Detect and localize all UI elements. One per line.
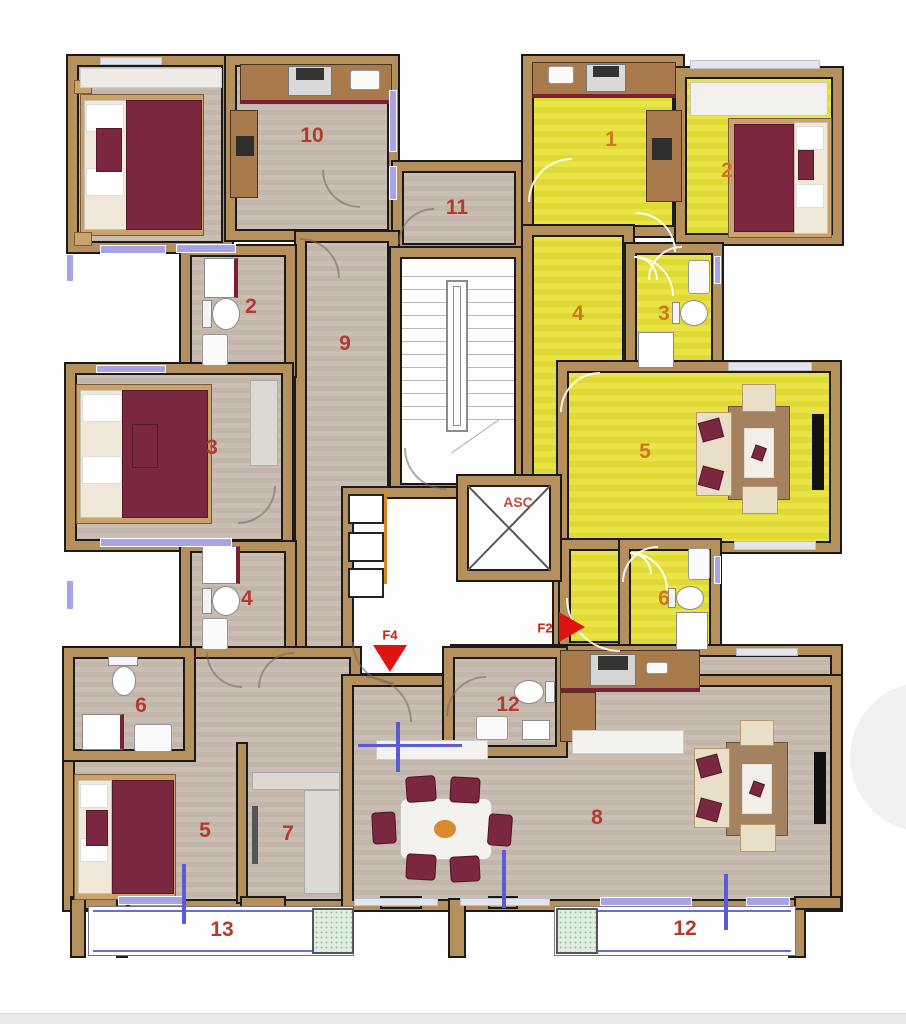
bed-cushion [86, 810, 108, 846]
dining-chair [449, 776, 480, 804]
room-label-bath-2: 2 [245, 295, 257, 319]
toilet-tank [545, 681, 555, 703]
bar-counter [376, 740, 488, 760]
window [354, 898, 438, 906]
bed-cushion [96, 128, 122, 172]
nightstand [74, 232, 92, 246]
armchair [740, 824, 776, 852]
wall [794, 896, 842, 910]
window [176, 244, 236, 253]
toilet [680, 300, 708, 326]
washing-machine [204, 258, 238, 298]
bed-pillow [80, 784, 108, 808]
wall-pillar [448, 898, 466, 958]
window [600, 897, 692, 906]
room-label-balcony-13: 13 [210, 918, 233, 942]
window [734, 541, 816, 550]
fridge-door [236, 136, 254, 156]
island-appliance [652, 138, 672, 160]
room-label-bedroom-2-yellow: 2 [721, 159, 733, 183]
kitchen-sink [646, 662, 668, 674]
floor-plan: 10 11 9 2 3 4 1 2 3 4 5 6 6 5 7 13 12 8 … [0, 0, 906, 1024]
room-label-bath-12: 12 [496, 693, 519, 717]
toilet-tank [202, 300, 212, 328]
toilet-tank [202, 588, 212, 614]
window [100, 245, 166, 254]
wall [236, 742, 248, 904]
window [728, 362, 812, 371]
stove-hood [296, 68, 324, 80]
window [100, 538, 232, 547]
washing-machine [638, 332, 674, 368]
room-label-kitchen-1: 1 [605, 128, 617, 152]
bar-counter [572, 730, 684, 754]
bath-sink [202, 334, 228, 366]
washing-machine [82, 714, 124, 750]
room-label-bedroom-5-bl: 5 [199, 819, 211, 843]
armchair [742, 384, 776, 412]
open-door-leaf [384, 492, 387, 584]
planter [312, 908, 354, 954]
washing-machine [676, 612, 708, 650]
stove-hood [593, 66, 619, 77]
armchair [742, 486, 778, 514]
toilet [212, 586, 240, 616]
planter [556, 908, 598, 954]
window [714, 256, 721, 284]
closet-shelf [690, 82, 828, 116]
room-label-balcony-12: 12 [673, 917, 696, 941]
room-label-bath-3-yellow: 3 [658, 302, 670, 326]
elevator-label: ASC [503, 494, 533, 510]
window [100, 57, 162, 65]
stairs-rail-inner [453, 286, 461, 426]
closet-rod [252, 806, 258, 864]
bath-sink [134, 724, 172, 752]
window [690, 60, 820, 69]
room-label-bath-6-bl: 6 [135, 694, 147, 718]
bed-pillow [86, 168, 124, 196]
room-label-hallway-4-yellow: 4 [572, 302, 584, 326]
window [736, 648, 798, 656]
window [118, 896, 186, 905]
watermark-circle [850, 682, 906, 832]
bath-sink [476, 716, 508, 740]
room-label-living-8: 8 [591, 806, 603, 830]
window [714, 556, 721, 584]
wall [70, 898, 86, 958]
window [66, 580, 74, 610]
kitchen-sink [350, 70, 380, 90]
toilet-tank [108, 656, 138, 666]
entry-shelf [348, 494, 384, 524]
dining-chair [487, 813, 513, 847]
window [96, 365, 166, 373]
exit-label-f2: F2 [537, 621, 552, 636]
exit-label-f4: F4 [382, 628, 397, 643]
bed-pillow [82, 394, 122, 422]
wardrobe [250, 380, 278, 466]
dining-chair [449, 855, 480, 883]
window [389, 166, 397, 200]
exit-arrow-f4-icon [373, 645, 407, 672]
dining-chair [405, 775, 437, 803]
room-label-corridor-11: 11 [446, 196, 468, 220]
armchair [740, 720, 774, 746]
bed-cushion [132, 424, 158, 468]
tv [814, 752, 826, 824]
bed-blanket [734, 124, 794, 232]
room-label-bath-6-yellow: 6 [658, 587, 670, 611]
dining-chair [405, 853, 436, 881]
bed-pillow [796, 126, 824, 150]
bed-pillow [82, 456, 122, 484]
room-label-bedroom-3: 3 [206, 436, 218, 460]
window-tick [724, 874, 728, 930]
entry-shelf [348, 532, 384, 562]
bed-cushion [798, 150, 814, 180]
room-label-hallway-9: 9 [339, 332, 351, 356]
elevator-shaft [458, 476, 560, 580]
entry-shelf [348, 568, 384, 598]
room-label-closet-7: 7 [282, 822, 294, 846]
dining-centerpiece [434, 820, 456, 838]
room-label-living-5-yellow: 5 [639, 440, 651, 464]
bed-pillow [796, 184, 824, 208]
exit-arrow-f2-icon [559, 612, 585, 642]
washing-machine [202, 546, 240, 584]
dining-chair [371, 811, 397, 844]
room-label-bath-4: 4 [241, 587, 253, 611]
window [66, 254, 74, 282]
toilet [112, 666, 136, 696]
kitchen-sink [548, 66, 574, 84]
bath-sink [202, 618, 228, 650]
window-tick [182, 864, 186, 924]
washing-machine [522, 720, 550, 740]
window-band [358, 744, 462, 747]
window-tick [502, 850, 506, 908]
bath-sink [688, 260, 710, 294]
bottom-bar [0, 1013, 906, 1024]
window-tick [396, 722, 400, 772]
wardrobe [304, 790, 340, 894]
bath-sink [688, 548, 710, 580]
bed-blanket [126, 100, 202, 230]
wardrobe [252, 772, 340, 790]
room-label-kitchen-10: 10 [300, 124, 323, 148]
stove-hood [598, 656, 628, 670]
toilet [676, 586, 704, 610]
bed-blanket [112, 780, 174, 894]
window [389, 90, 397, 152]
window [746, 897, 790, 906]
tv [812, 414, 824, 490]
toilet [212, 298, 240, 330]
closet-shelf [80, 68, 222, 88]
toilet-tank [672, 302, 680, 324]
